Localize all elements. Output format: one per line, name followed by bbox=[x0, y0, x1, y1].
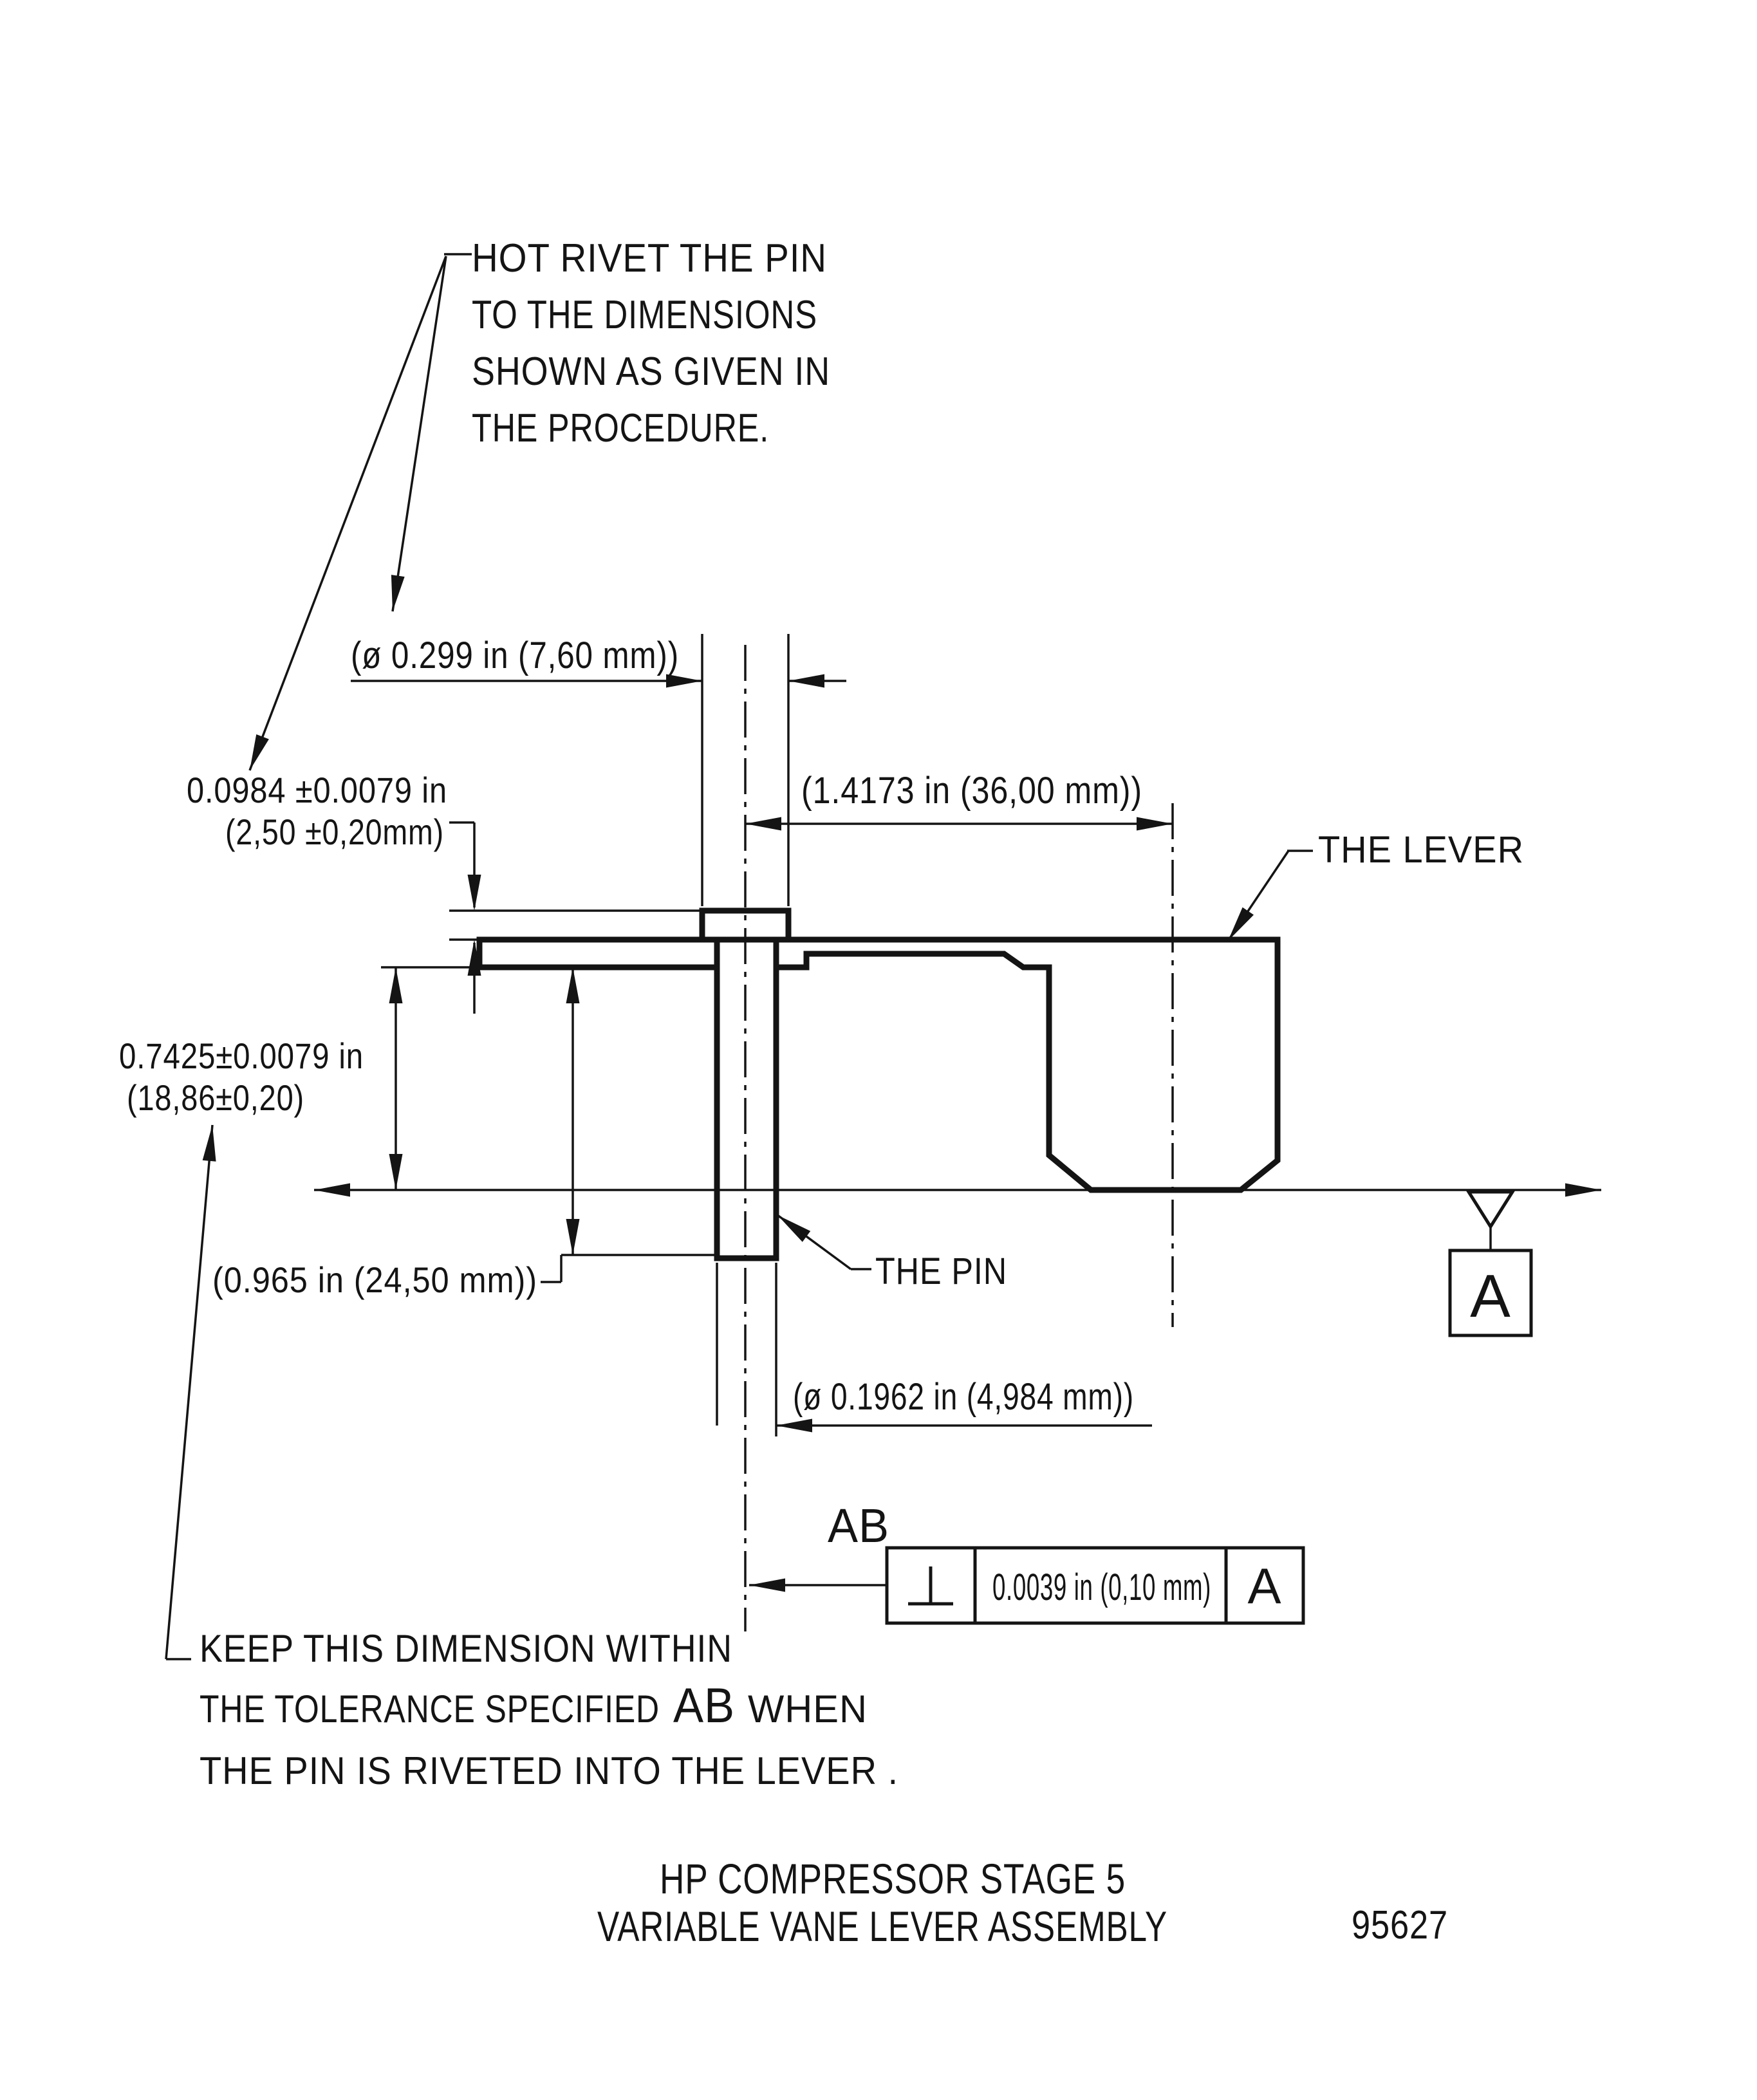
rivet-head-height-text-mm: (2,50 ±0,20mm) bbox=[225, 812, 444, 852]
figure-number: 95627 bbox=[1352, 1903, 1448, 1947]
hot-rivet-note-line1: HOT RIVET THE PIN bbox=[472, 236, 827, 281]
hot-rivet-note-line3: SHOWN AS GIVEN IN bbox=[472, 349, 830, 394]
keep-note-line3: THE PIN IS RIVETED INTO THE LEVER . bbox=[200, 1749, 898, 1792]
engineering-drawing-canvas: HOT RIVET THE PIN TO THE DIMENSIONS SHOW… bbox=[0, 0, 1757, 2100]
keep-note-line1: KEEP THIS DIMENSION WITHIN bbox=[200, 1627, 732, 1670]
fcf-datum-ref: A bbox=[1247, 1557, 1281, 1614]
rivet-head-height-text-in: 0.0984 ±0.0079 in bbox=[187, 770, 447, 810]
lever-label-text: THE LEVER bbox=[1318, 829, 1524, 871]
hot-rivet-note-line2: TO THE DIMENSIONS bbox=[472, 293, 817, 337]
drawing-sheet: HOT RIVET THE PIN TO THE DIMENSIONS SHOW… bbox=[0, 0, 1757, 2100]
keep-note-line2-post: WHEN bbox=[748, 1687, 868, 1731]
lever-span-text: (1.4173 in (36,00 mm)) bbox=[801, 770, 1142, 812]
fcf-tolerance-text: 0.0039 in (0,10 mm) bbox=[992, 1566, 1211, 1608]
title-line1: HP COMPRESSOR STAGE 5 bbox=[660, 1855, 1126, 1902]
hot-rivet-note-line4: THE PROCEDURE. bbox=[472, 406, 769, 451]
fcf-ref-label: AB bbox=[828, 1499, 889, 1552]
lever-height-text-in: 0.7425±0.0079 in bbox=[119, 1036, 364, 1076]
title-line2: VARIABLE VANE LEVER ASSEMBLY bbox=[597, 1902, 1167, 1950]
rivet-head-diameter-text: (ø 0.299 in (7,60 mm)) bbox=[351, 635, 679, 676]
keep-note-line2-ref: AB bbox=[673, 1678, 735, 1733]
pin-protrusion-text: (0.965 in (24,50 mm)) bbox=[212, 1259, 537, 1300]
lever-height-text-mm: (18,86±0,20) bbox=[127, 1077, 304, 1118]
datum-label: A bbox=[1470, 1262, 1511, 1330]
keep-note-line2-pre: THE TOLERANCE SPECIFIED bbox=[200, 1687, 660, 1731]
pin-label-text: THE PIN bbox=[875, 1250, 1007, 1292]
pin-diameter-text: (ø 0.1962 in (4,984 mm)) bbox=[793, 1376, 1134, 1418]
